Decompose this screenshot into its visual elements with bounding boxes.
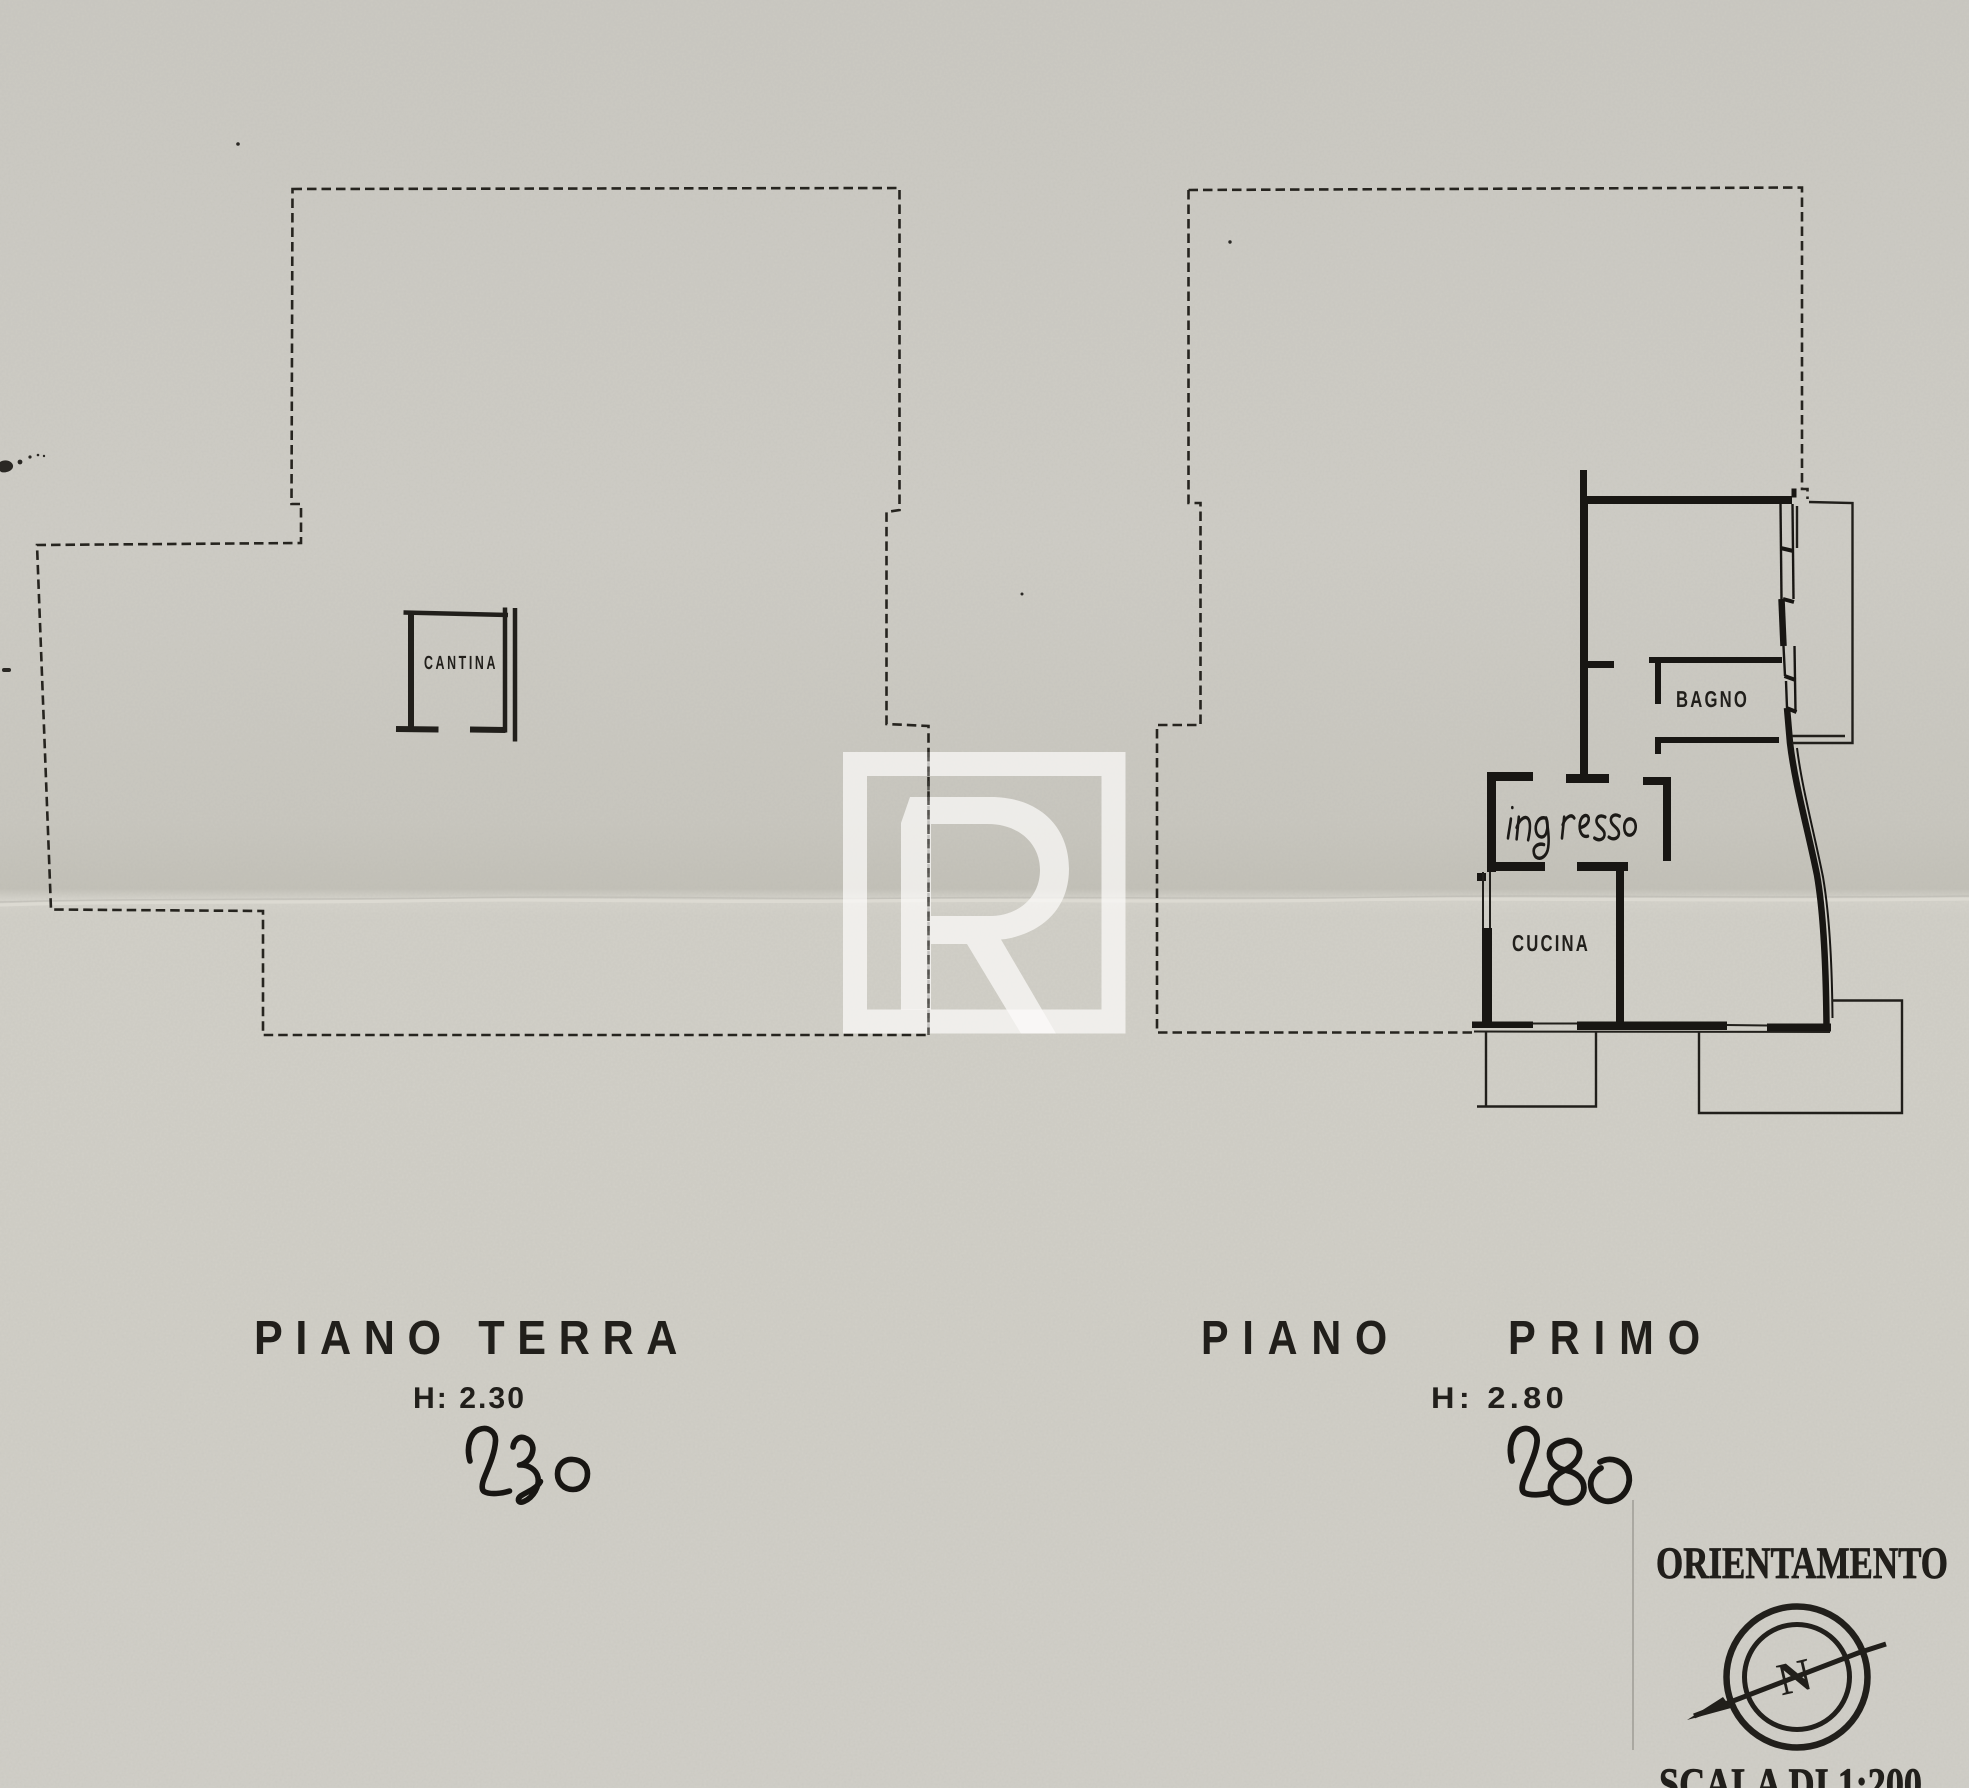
svg-text:PIANO TERRA: PIANO TERRA <box>254 1312 690 1365</box>
svg-text:H: 2.80: H: 2.80 <box>1431 1382 1568 1415</box>
svg-text:ORIENTAMENTO: ORIENTAMENTO <box>1656 1538 1948 1588</box>
svg-text:CUCINA: CUCINA <box>1512 930 1590 956</box>
svg-text:SCALA DI 1:200: SCALA DI 1:200 <box>1659 1759 1922 1788</box>
svg-text:CANTINA: CANTINA <box>424 653 498 674</box>
svg-text:H: 2.30: H: 2.30 <box>413 1382 526 1415</box>
svg-text:PIANO: PIANO <box>1201 1312 1401 1365</box>
svg-text:PRIMO: PRIMO <box>1508 1312 1714 1365</box>
svg-text:BAGNO: BAGNO <box>1676 686 1749 712</box>
